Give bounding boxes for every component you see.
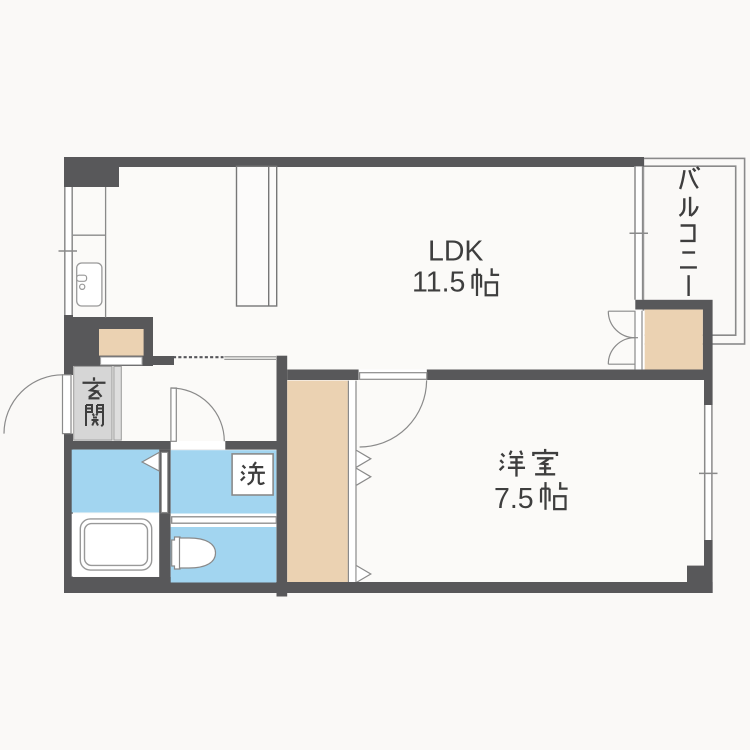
svg-text:7.5: 7.5: [494, 483, 534, 515]
svg-text:LDK: LDK: [428, 236, 483, 268]
svg-text:11.5: 11.5: [412, 267, 465, 299]
